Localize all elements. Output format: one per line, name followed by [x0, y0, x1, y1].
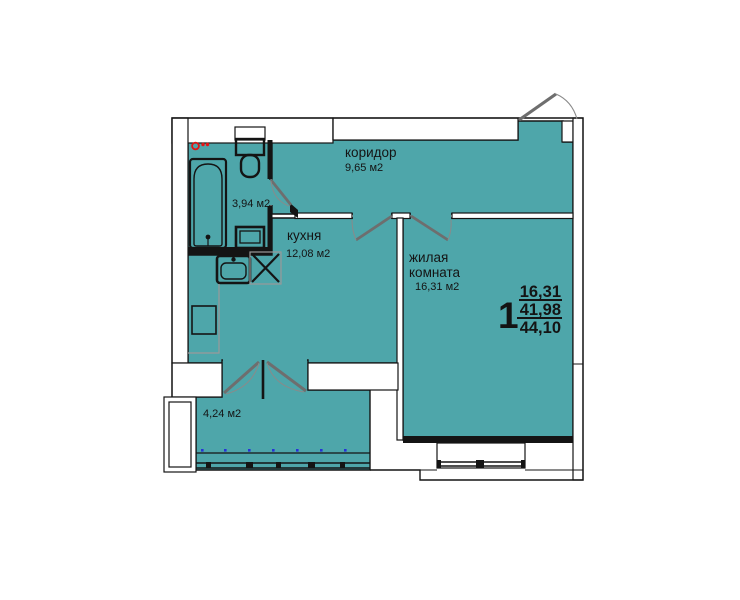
corridor-area: 9,65 м2: [345, 162, 383, 174]
threshold-kitchen: [353, 211, 391, 220]
wall-balcony-right: [308, 363, 398, 390]
balcony-area: 4,24 м2: [203, 408, 241, 420]
floor-plan-svg: коридор 9,65 м2 3,94 м2 кухня 12,08 м2 ж…: [0, 0, 740, 600]
wall-balcony-left: [172, 363, 222, 397]
wall-living-bottom: [403, 436, 573, 443]
wall-bathroom-right-lower: [268, 206, 273, 248]
balcony-left-window-inner: [169, 402, 191, 467]
wall-right: [573, 118, 583, 480]
entrance-door-leaf: [519, 94, 556, 120]
entrance-door: [519, 94, 577, 120]
info-living-area: 16,31: [520, 283, 561, 301]
wall-corridor-living: [452, 213, 573, 219]
info-room-count: 1: [498, 295, 519, 336]
wall-left: [172, 118, 188, 363]
kitchen-label: кухня: [287, 228, 321, 243]
corridor-label: коридор: [345, 145, 397, 160]
wall-kitchen-living: [397, 218, 403, 440]
wall-corridor-kitchen: [295, 213, 352, 219]
entrance-door-arc: [556, 94, 577, 119]
bathroom-area: 3,94 м2: [232, 198, 270, 210]
living-label-line1: жилая: [409, 250, 448, 265]
living-label-line2: комната: [409, 265, 461, 280]
info-area: 41,98: [520, 301, 561, 319]
kitchen-area: 12,08 м2: [286, 248, 330, 260]
threshold-balcony: [223, 359, 307, 368]
wall-bathroom-right-upper: [268, 140, 273, 179]
floor-plan-page: коридор 9,65 м2 3,94 м2 кухня 12,08 м2 ж…: [0, 0, 740, 600]
info-total-area: 44,10: [520, 319, 561, 337]
wall-entry-notch: [562, 121, 573, 142]
living-area: 16,31 м2: [415, 281, 459, 293]
wall-top-corridor: [333, 118, 518, 140]
